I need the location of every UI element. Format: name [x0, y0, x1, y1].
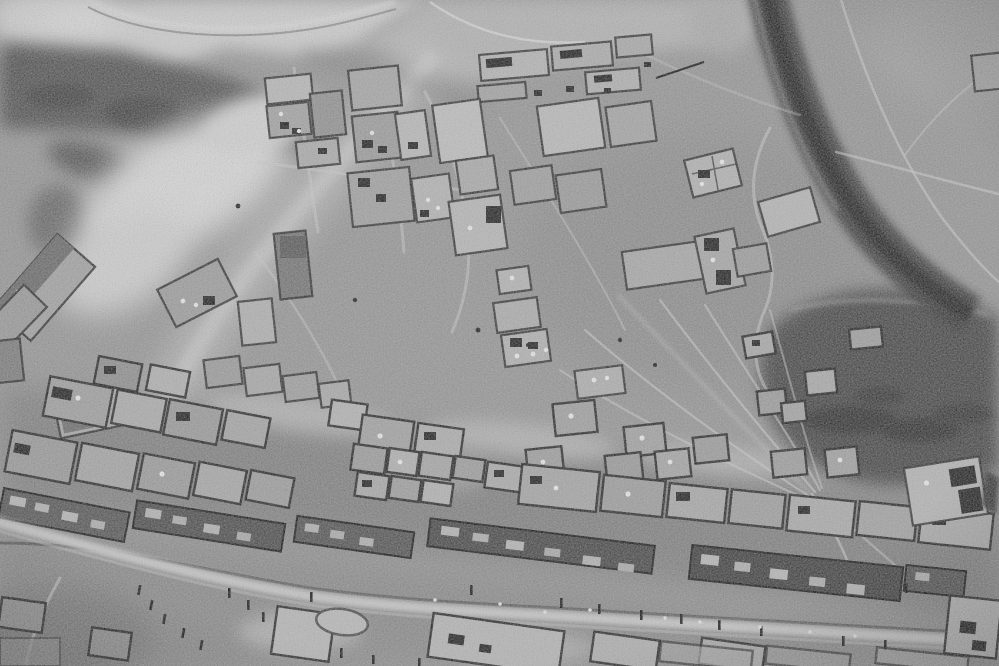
aerial-photo-svg — [0, 0, 999, 666]
aerial-photograph — [0, 0, 999, 666]
film-grain-dark-overlay — [0, 0, 999, 666]
